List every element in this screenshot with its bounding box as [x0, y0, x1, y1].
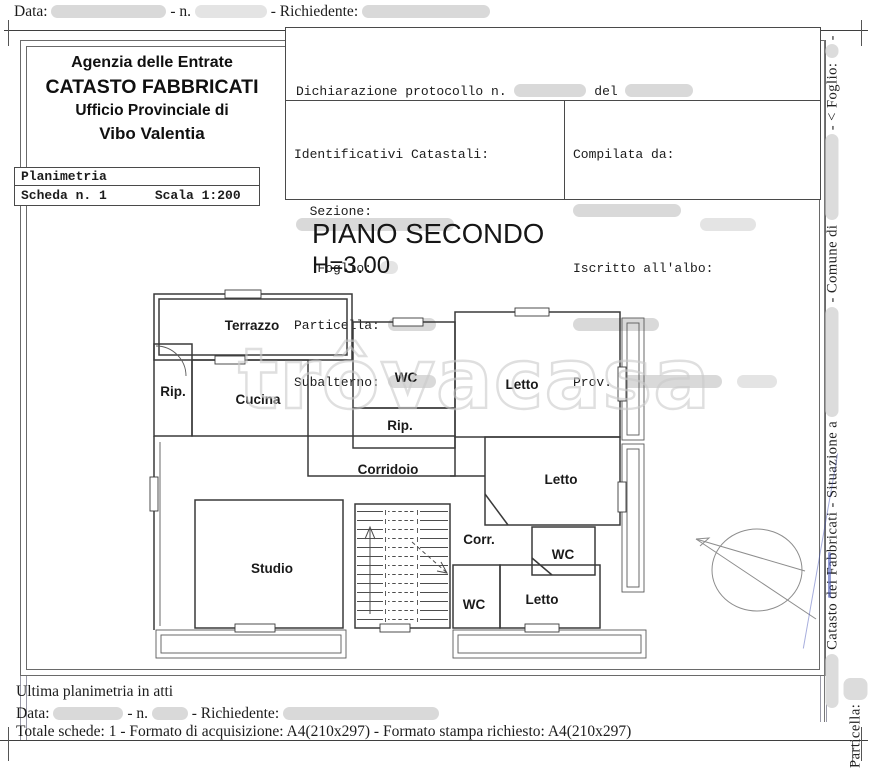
declaration-box: Dichiarazione protocollo n. del Comune d…	[285, 27, 821, 101]
scala-label: Scala 1:200	[155, 188, 241, 203]
room-label-wc-top: WC	[395, 370, 418, 385]
room-label-rip-left: Rip.	[160, 384, 186, 399]
sheet-border-stub	[820, 676, 821, 722]
redacted-value	[826, 307, 839, 417]
plan-title: PIANO SECONDO	[312, 218, 544, 250]
room-label-corr: Corr.	[463, 532, 495, 547]
identificativi-box: Identificativi Catastali: Sezione: Fogli…	[285, 100, 821, 200]
footer-data-label: Data:	[16, 705, 50, 722]
redacted-value	[826, 654, 839, 708]
side-vertical-text: Catasto dei Fabbricati - Situazione a - …	[824, 0, 870, 768]
stairs	[357, 510, 448, 622]
planimetria-box: Planimetria Scheda n. 1 Scala 1:200	[14, 167, 260, 206]
room-label-terrazzo: Terrazzo	[225, 318, 280, 333]
room-label-rip-mid: Rip.	[387, 418, 413, 433]
redacted-value	[573, 204, 681, 217]
redacted-value	[53, 707, 123, 720]
identificativi-left: Identificativi Catastali: Sezione: Fogli…	[286, 101, 565, 199]
room-label-letto-bottom: Letto	[526, 592, 559, 607]
redacted-value	[625, 84, 693, 97]
room-label-letto-top: Letto	[506, 377, 539, 392]
redacted-value	[826, 45, 839, 59]
strip-seg2: - Comune di	[824, 225, 840, 303]
footer-richiedente-label: - Richiedente:	[192, 705, 279, 722]
room-label-cucina: Cucina	[235, 392, 281, 407]
albo-label: Iscritto all'albo:	[573, 259, 812, 278]
compilata-title: Compilata da:	[573, 145, 812, 164]
redacted-value	[283, 707, 439, 720]
del-label: del	[594, 84, 617, 99]
agency-line2: CATASTO FABBRICATI	[34, 74, 270, 100]
n-label: - n.	[170, 3, 191, 20]
richiedente-label: - Richiedente:	[271, 3, 358, 20]
footer-data-line: Data: - n. - Richiedente:	[16, 705, 439, 723]
room-label-letto-right: Letto	[545, 472, 578, 487]
door-arc	[156, 346, 186, 376]
redacted-value	[826, 134, 839, 220]
room-label-studio: Studio	[251, 561, 293, 576]
data-label: Data:	[14, 3, 48, 20]
agency-line3: Ufficio Provinciale di	[34, 100, 270, 122]
planimetria-row2: Scheda n. 1 Scala 1:200	[15, 186, 259, 205]
redacted-value	[152, 707, 188, 720]
cadastral-document-page: { "topbar": { "data_label": "Data:", "n_…	[0, 0, 879, 768]
room-label-wc-bottom: WC	[463, 597, 486, 612]
totale-line: Totale schede: 1 - Formato di acquisizio…	[16, 723, 631, 741]
identificativi-title: Identificativi Catastali:	[294, 145, 556, 164]
corner-tick	[8, 20, 9, 46]
redacted-value	[51, 5, 166, 18]
ultima-line: Ultima planimetria in atti	[16, 683, 173, 701]
compilata-value	[573, 202, 812, 221]
floor-plan-drawing: Terrazzo Rip. Cucina WC Letto Rip. Corri…	[140, 282, 840, 682]
north-symbol-icon	[696, 529, 816, 619]
redacted-value	[195, 5, 267, 18]
agency-header: Agenzia delle Entrate CATASTO FABBRICATI…	[34, 52, 270, 145]
room-label-corridoio: Corridoio	[358, 462, 419, 477]
corner-tick	[8, 727, 9, 761]
room-label-wc-right: WC	[552, 547, 575, 562]
footer-n-label: - n.	[127, 705, 148, 722]
blue-pen-annotation	[828, 552, 831, 598]
planimetria-title: Planimetria	[15, 168, 259, 186]
agency-line1: Agenzia delle Entrate	[34, 52, 270, 74]
agency-line4: Vibo Valentia	[34, 122, 270, 145]
protocol-label: Dichiarazione protocollo n.	[296, 84, 507, 99]
plan-height-label: H=3.00	[312, 252, 390, 280]
redacted-value	[514, 84, 586, 97]
redacted-value	[843, 678, 867, 700]
compilata-right: Compilata da: Iscritto all'albo: Prov.	[565, 101, 820, 199]
top-data-line: Data: - n. - Richiedente:	[14, 3, 490, 21]
scheda-label: Scheda n. 1	[21, 188, 107, 203]
strip-seg3: - < Foglio:	[824, 63, 840, 131]
redacted-value	[362, 5, 490, 18]
